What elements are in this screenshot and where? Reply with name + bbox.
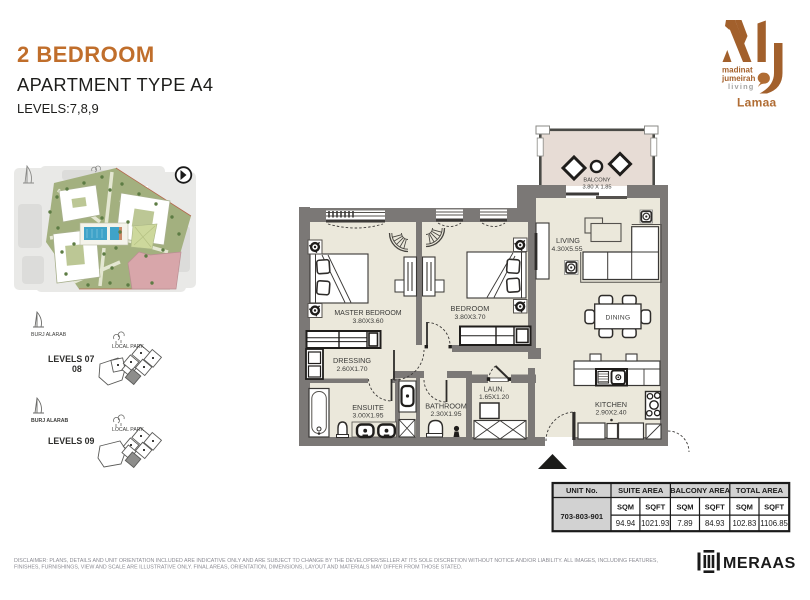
- svg-text:1.65X1.20: 1.65X1.20: [479, 394, 509, 401]
- svg-text:SQFT: SQFT: [764, 503, 784, 512]
- svg-text:94.94: 94.94: [616, 519, 636, 528]
- svg-text:DINING: DINING: [606, 315, 631, 322]
- svg-text:08: 08: [72, 364, 82, 374]
- svg-text:1106.85: 1106.85: [760, 519, 788, 528]
- svg-text:LOCAL PARK: LOCAL PARK: [112, 344, 145, 350]
- svg-text:TOTAL AREA: TOTAL AREA: [736, 486, 784, 495]
- svg-text:3.00X1.95: 3.00X1.95: [353, 413, 384, 420]
- svg-text:MERAAS: MERAAS: [723, 555, 796, 572]
- svg-text:DISCLAIMER: PLANS, DETAILS AND: DISCLAIMER: PLANS, DETAILS AND UNIT ORIE…: [14, 558, 658, 564]
- svg-text:7.89: 7.89: [677, 519, 692, 528]
- svg-text:SQM: SQM: [676, 503, 693, 512]
- svg-text:2.30X1.95: 2.30X1.95: [431, 411, 462, 418]
- svg-text:3.80X3.70: 3.80X3.70: [455, 314, 486, 321]
- svg-text:SQM: SQM: [617, 503, 634, 512]
- svg-text:SUITE AREA: SUITE AREA: [618, 486, 664, 495]
- svg-text:Lamaa: Lamaa: [737, 96, 777, 110]
- svg-text:3.80 X 1.85: 3.80 X 1.85: [582, 185, 611, 191]
- svg-text:1021.93: 1021.93: [641, 519, 669, 528]
- svg-text:BALCONY AREA: BALCONY AREA: [670, 486, 731, 495]
- svg-text:SQM: SQM: [736, 503, 753, 512]
- svg-text:LIVING: LIVING: [556, 236, 580, 245]
- svg-text:BURJ ALARAB: BURJ ALARAB: [31, 332, 67, 338]
- svg-text:SQFT: SQFT: [645, 503, 665, 512]
- svg-text:LAUN.: LAUN.: [484, 387, 505, 394]
- svg-text:LEVELS 09: LEVELS 09: [48, 436, 95, 446]
- svg-text:DRESSING: DRESSING: [333, 356, 371, 365]
- svg-text:2.90X2.40: 2.90X2.40: [596, 410, 627, 417]
- svg-text:FINISHES, FURNISHINGS, VIEW AN: FINISHES, FURNISHINGS, VIEW AND SCALE AR…: [14, 565, 462, 571]
- svg-text:84.93: 84.93: [705, 519, 725, 528]
- svg-text:KITCHEN: KITCHEN: [595, 400, 627, 409]
- svg-text:living: living: [728, 82, 755, 91]
- svg-text:4.30X5.55: 4.30X5.55: [552, 246, 583, 253]
- svg-text:SQFT: SQFT: [705, 503, 725, 512]
- svg-text:LEVELS:7,8,9: LEVELS:7,8,9: [17, 101, 99, 116]
- svg-text:2.60X1.70: 2.60X1.70: [337, 366, 368, 373]
- svg-text:703-803-901: 703-803-901: [561, 512, 604, 521]
- svg-text:UNIT No.: UNIT No.: [566, 486, 598, 495]
- svg-text:ENSUITE: ENSUITE: [352, 403, 384, 412]
- svg-text:MASTER BEDROOM: MASTER BEDROOM: [334, 310, 401, 317]
- svg-text:BURJ ALARAB: BURJ ALARAB: [31, 418, 69, 424]
- svg-text:2 BEDROOM: 2 BEDROOM: [17, 42, 155, 67]
- svg-text:BEDROOM: BEDROOM: [450, 304, 489, 313]
- svg-text:BATHROOM: BATHROOM: [425, 402, 467, 411]
- svg-text:LEVELS 07: LEVELS 07: [48, 354, 95, 364]
- svg-text:3.80X3.60: 3.80X3.60: [353, 318, 384, 325]
- svg-text:APARTMENT TYPE A4: APARTMENT TYPE A4: [17, 74, 213, 95]
- svg-text:BALCONY: BALCONY: [583, 178, 610, 184]
- svg-text:LOCAL PARK: LOCAL PARK: [112, 427, 145, 433]
- svg-text:102.83: 102.83: [732, 519, 756, 528]
